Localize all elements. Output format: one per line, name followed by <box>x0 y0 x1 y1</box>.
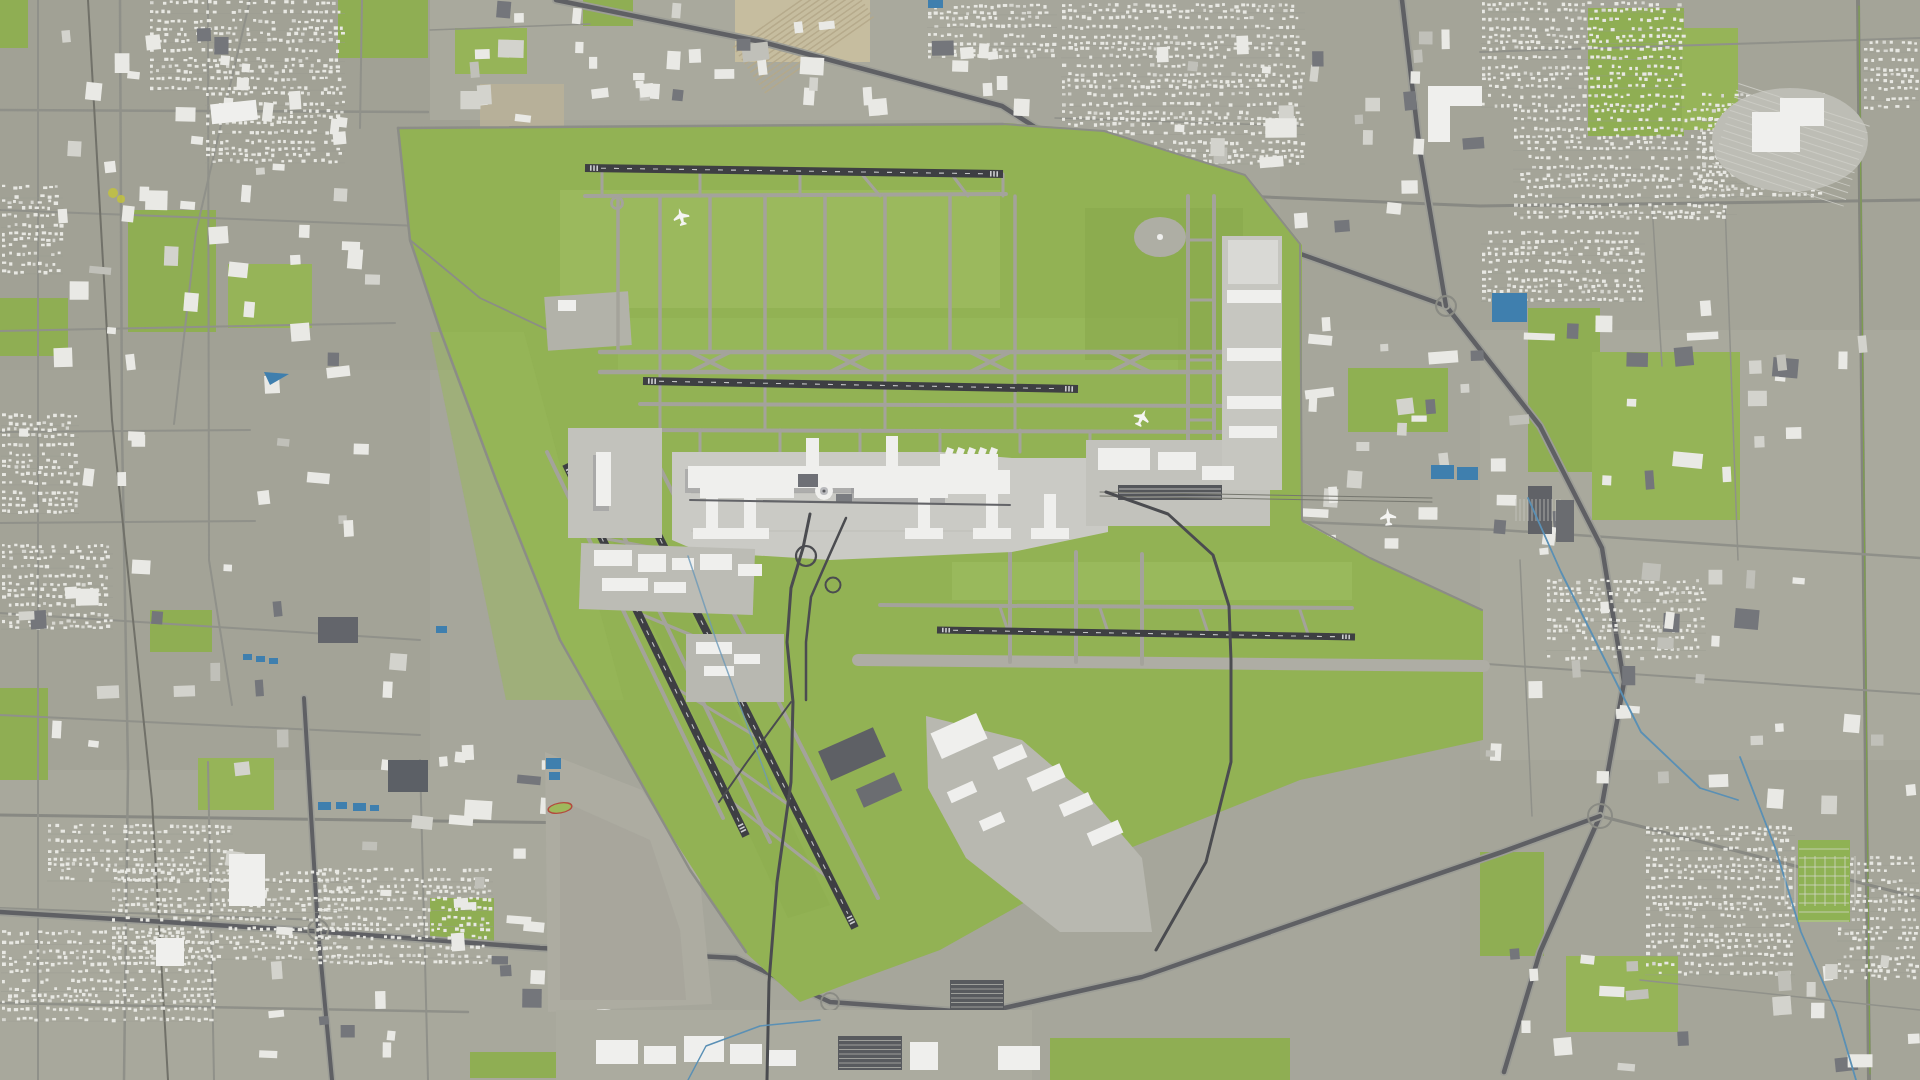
house <box>57 466 60 469</box>
house <box>413 897 416 900</box>
house <box>1671 27 1675 30</box>
house <box>253 86 257 89</box>
house <box>162 65 165 68</box>
house <box>1533 211 1536 214</box>
house <box>1656 135 1660 139</box>
house <box>1569 290 1573 293</box>
house <box>1628 18 1631 20</box>
house <box>278 117 282 120</box>
house <box>408 879 411 881</box>
house <box>94 862 98 865</box>
house <box>1690 953 1694 956</box>
house <box>1599 28 1603 30</box>
house <box>132 868 135 871</box>
house <box>1637 599 1640 602</box>
house <box>1663 147 1666 149</box>
house <box>1666 839 1670 842</box>
house <box>356 935 359 938</box>
house <box>124 889 128 893</box>
house <box>9 625 12 628</box>
house <box>1036 4 1040 6</box>
house <box>2 595 6 598</box>
house <box>184 87 187 89</box>
house <box>177 87 181 90</box>
house <box>1268 54 1271 57</box>
house <box>86 557 90 560</box>
house <box>1168 16 1172 18</box>
house <box>1710 925 1714 928</box>
house <box>381 946 385 949</box>
house <box>996 25 1000 28</box>
house <box>110 619 113 621</box>
house <box>1482 278 1486 281</box>
house <box>1601 56 1605 58</box>
house <box>1496 259 1500 262</box>
house <box>1527 278 1530 281</box>
house <box>1699 903 1702 906</box>
house <box>1502 46 1505 50</box>
house <box>324 890 328 893</box>
house <box>368 945 372 948</box>
house <box>62 557 65 559</box>
house <box>1230 122 1234 125</box>
house <box>64 471 67 474</box>
building <box>1617 1063 1635 1072</box>
house <box>1562 41 1565 44</box>
house <box>1207 110 1211 113</box>
house <box>1159 5 1163 8</box>
house <box>362 954 365 956</box>
house <box>1230 26 1234 29</box>
helipad-marker <box>1157 234 1163 240</box>
house <box>33 963 36 966</box>
house <box>1571 104 1575 107</box>
house <box>246 946 249 948</box>
house <box>1507 104 1510 107</box>
house <box>27 962 30 965</box>
park <box>0 298 68 356</box>
house <box>265 20 269 23</box>
house <box>1679 19 1683 22</box>
house <box>1530 40 1534 43</box>
house <box>1618 147 1622 149</box>
house <box>1545 29 1549 32</box>
house <box>222 898 225 902</box>
house <box>70 491 74 493</box>
house <box>368 898 371 901</box>
house <box>1566 617 1570 620</box>
house <box>150 71 153 74</box>
house <box>1103 54 1106 57</box>
house <box>1609 251 1612 255</box>
house <box>211 931 214 933</box>
building <box>498 40 524 58</box>
house <box>1670 832 1673 835</box>
house <box>1755 876 1759 879</box>
house <box>1653 858 1657 861</box>
house <box>1709 933 1713 937</box>
house <box>1721 189 1724 192</box>
house <box>114 877 118 880</box>
house <box>1585 204 1589 207</box>
house <box>1658 923 1661 926</box>
house <box>1556 46 1559 49</box>
house <box>307 942 310 944</box>
house <box>1681 591 1685 594</box>
house <box>192 941 195 944</box>
house <box>1571 179 1575 183</box>
house <box>1524 2 1528 4</box>
house <box>1884 49 1888 52</box>
house <box>103 1007 107 1010</box>
house <box>1149 55 1152 58</box>
house <box>1850 970 1854 974</box>
house <box>1558 284 1562 287</box>
house <box>1611 28 1615 31</box>
house <box>425 928 429 930</box>
house <box>153 872 157 876</box>
house <box>438 923 442 926</box>
house <box>8 613 11 616</box>
house <box>1634 210 1637 213</box>
house <box>966 12 969 15</box>
house <box>1716 945 1719 949</box>
house <box>1868 969 1872 972</box>
house <box>1185 34 1188 37</box>
house <box>1245 117 1248 120</box>
house <box>1777 865 1780 868</box>
house <box>1715 204 1719 206</box>
house <box>1582 3 1585 6</box>
south-pier-head <box>731 528 769 539</box>
house <box>38 471 41 474</box>
house <box>233 947 237 950</box>
house <box>2 582 5 585</box>
house <box>1134 94 1138 97</box>
house <box>45 565 49 569</box>
house <box>82 978 86 981</box>
house <box>1649 56 1653 58</box>
house <box>31 602 34 605</box>
house <box>1112 122 1116 126</box>
house <box>1553 625 1557 628</box>
house <box>79 989 82 993</box>
house <box>204 1007 207 1010</box>
house <box>1553 619 1556 622</box>
house <box>1652 863 1656 866</box>
house <box>1544 252 1548 255</box>
house <box>448 936 451 939</box>
house <box>2 185 5 187</box>
house <box>104 603 107 606</box>
house <box>1125 26 1128 29</box>
house <box>28 587 32 590</box>
house <box>1620 109 1623 112</box>
house <box>461 877 465 881</box>
house <box>250 940 254 942</box>
house <box>76 995 79 997</box>
house <box>112 897 115 900</box>
house <box>1204 73 1207 77</box>
house <box>1081 79 1084 82</box>
house <box>58 932 62 934</box>
house <box>64 510 67 512</box>
house <box>999 55 1003 58</box>
container-yard <box>838 1036 902 1070</box>
house <box>2 245 6 247</box>
house <box>1568 271 1572 274</box>
house <box>141 936 145 938</box>
house <box>160 918 163 921</box>
house <box>1126 118 1129 122</box>
house <box>250 91 254 93</box>
house <box>1728 194 1731 196</box>
house <box>1675 636 1678 638</box>
house <box>158 993 161 996</box>
house <box>142 898 146 900</box>
house <box>350 937 353 939</box>
house <box>370 890 373 893</box>
house <box>384 868 388 871</box>
house <box>1662 105 1666 108</box>
house <box>1110 64 1113 67</box>
warehouse <box>998 1046 1040 1070</box>
house <box>1537 72 1540 75</box>
house <box>1737 858 1740 860</box>
building <box>1657 637 1674 649</box>
house <box>15 988 19 991</box>
house <box>1515 253 1519 256</box>
building <box>818 20 835 30</box>
house <box>87 574 90 577</box>
house <box>1093 10 1096 13</box>
house <box>1710 210 1714 213</box>
house <box>1745 933 1749 936</box>
ga-building <box>700 554 732 570</box>
house <box>1118 65 1121 67</box>
house <box>208 0 212 3</box>
house <box>1244 130 1248 133</box>
house <box>1597 85 1600 88</box>
house <box>1702 142 1706 145</box>
house <box>269 77 272 80</box>
house <box>20 237 24 240</box>
house <box>1738 870 1741 873</box>
house <box>272 27 276 30</box>
house <box>1612 57 1616 60</box>
house <box>215 64 219 67</box>
house <box>76 956 79 959</box>
house <box>1787 907 1791 910</box>
house <box>1525 41 1529 43</box>
house <box>1896 976 1900 978</box>
house <box>1619 259 1623 262</box>
house <box>1532 103 1535 105</box>
house <box>483 907 487 910</box>
house <box>1573 146 1577 148</box>
house <box>1606 147 1609 150</box>
house <box>209 1019 213 1022</box>
house <box>1088 111 1092 114</box>
house <box>1864 909 1867 912</box>
house <box>1769 933 1772 936</box>
building <box>67 141 81 157</box>
house <box>1690 933 1693 936</box>
house <box>348 878 351 880</box>
house <box>162 930 166 932</box>
house <box>1188 85 1192 88</box>
house <box>272 48 276 50</box>
airport-map-render[interactable] <box>0 0 1920 1080</box>
house <box>1151 86 1155 89</box>
autumn-trees <box>117 195 125 203</box>
house <box>52 263 55 266</box>
house <box>1664 903 1667 906</box>
building <box>1428 350 1458 364</box>
house <box>1776 826 1780 829</box>
house <box>1884 106 1888 109</box>
house <box>1231 92 1234 95</box>
house <box>112 1019 116 1022</box>
house <box>1624 599 1628 602</box>
house <box>286 871 289 874</box>
house <box>370 929 373 931</box>
building <box>1906 784 1917 796</box>
house <box>1725 908 1728 911</box>
house <box>343 886 346 888</box>
house <box>1742 962 1745 965</box>
house <box>1272 5 1275 8</box>
house <box>1876 917 1879 920</box>
house <box>1136 118 1139 122</box>
house <box>1533 186 1536 188</box>
house <box>1882 917 1885 920</box>
house <box>1631 179 1635 182</box>
house <box>325 131 329 134</box>
house <box>277 120 281 123</box>
house <box>263 934 267 936</box>
house <box>1648 618 1651 621</box>
airport-outbuilding <box>558 300 576 311</box>
house <box>210 903 213 906</box>
house <box>327 109 331 112</box>
building <box>262 102 274 122</box>
house <box>48 503 52 506</box>
house <box>1069 35 1073 38</box>
house <box>7 434 10 437</box>
house <box>82 993 85 996</box>
house <box>179 1019 183 1021</box>
house <box>1645 179 1649 182</box>
house <box>172 858 175 861</box>
house <box>318 935 321 938</box>
house <box>132 870 135 873</box>
house <box>1706 173 1709 176</box>
house <box>1208 104 1211 107</box>
house <box>1691 630 1694 633</box>
house <box>53 460 57 463</box>
house <box>1564 284 1568 286</box>
house <box>1902 926 1906 929</box>
house <box>1197 73 1201 75</box>
building <box>256 167 265 174</box>
house <box>1571 18 1574 22</box>
house <box>1151 25 1154 27</box>
house <box>325 937 329 940</box>
house <box>1514 18 1517 21</box>
house <box>1756 858 1759 861</box>
house <box>163 2 166 5</box>
house <box>443 885 447 888</box>
building <box>671 3 681 19</box>
house <box>1535 141 1539 144</box>
house <box>1665 887 1668 890</box>
house <box>1145 26 1149 29</box>
house <box>1225 34 1229 36</box>
house <box>1613 656 1617 659</box>
house <box>2 1007 5 1010</box>
house <box>1702 169 1706 171</box>
house <box>1190 74 1194 76</box>
building <box>1528 681 1542 698</box>
house <box>265 147 269 150</box>
house <box>1183 132 1186 134</box>
building <box>243 301 255 317</box>
house <box>1612 216 1615 219</box>
house <box>1574 241 1577 244</box>
house <box>1502 252 1505 255</box>
house <box>482 945 485 948</box>
house <box>1878 887 1881 890</box>
house <box>1581 184 1584 186</box>
house <box>1685 826 1688 829</box>
house <box>166 1018 169 1021</box>
house <box>1224 16 1227 19</box>
house <box>1677 581 1681 583</box>
house <box>1501 104 1504 107</box>
house <box>1073 117 1076 120</box>
house <box>209 872 212 874</box>
terminal-west-block <box>700 470 794 498</box>
house <box>1660 174 1664 177</box>
building <box>132 559 151 574</box>
house <box>165 935 168 938</box>
house <box>1862 956 1866 959</box>
house <box>41 244 45 246</box>
house <box>150 19 153 21</box>
house <box>1560 593 1564 596</box>
house <box>233 936 236 939</box>
house <box>202 825 206 828</box>
house <box>1658 903 1662 906</box>
house <box>1649 34 1652 38</box>
house <box>1632 8 1636 11</box>
house <box>1908 41 1912 44</box>
house <box>1602 625 1605 628</box>
house <box>1646 870 1649 874</box>
house <box>1646 216 1649 219</box>
house <box>177 880 180 883</box>
airport-3d-map-viewport[interactable] <box>0 0 1920 1080</box>
house <box>1769 971 1773 974</box>
house <box>2 504 5 506</box>
retention-pond <box>269 658 278 664</box>
house <box>1904 887 1907 890</box>
building <box>1510 948 1520 959</box>
house <box>106 858 110 861</box>
big-box-store <box>229 854 265 906</box>
house <box>1565 77 1569 79</box>
